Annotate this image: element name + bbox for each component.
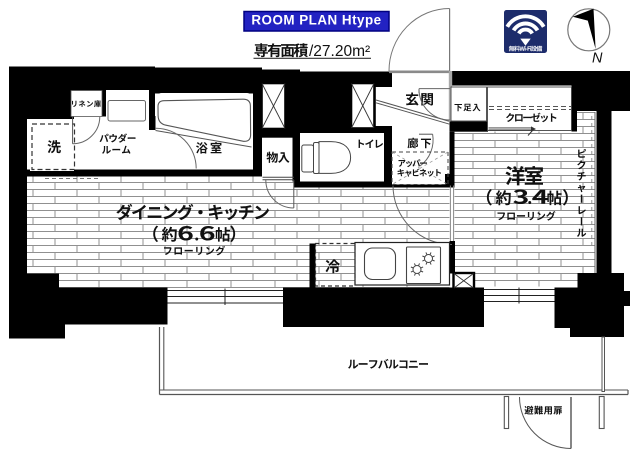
svg-text:/27.20m²: /27.20m² [309, 43, 370, 60]
svg-text:ROOM PLAN Htype: ROOM PLAN Htype [251, 13, 381, 28]
